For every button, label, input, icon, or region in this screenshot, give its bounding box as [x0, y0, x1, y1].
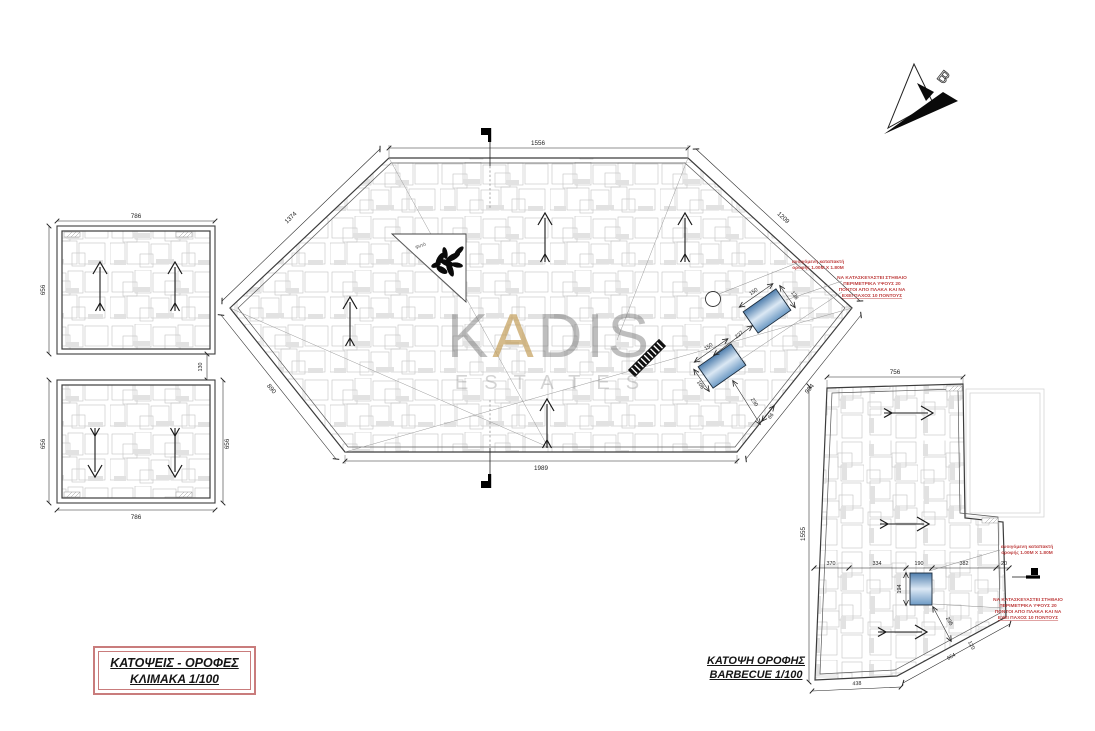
svg-text:ΠΟΝΤΟΙ ΑΠΟ ΠΛΑΚΑ ΚΑΙ ΝΑ: ΠΟΝΤΟΙ ΑΠΟ ΠΛΑΚΑ ΚΑΙ ΝΑ [839, 287, 906, 293]
dim-label: 756 [890, 369, 901, 376]
dim-label: 786 [131, 213, 142, 220]
svg-text:ανοιγόμενη καταπακτή: ανοιγόμενη καταπακτή [1001, 544, 1053, 550]
svg-text:ΝΑ ΚΑΤΑΣΚΕΥΑΣΤΕΙ ΣΤΗΘΑΙΟ: ΝΑ ΚΑΤΑΣΚΕΥΑΣΤΕΙ ΣΤΗΘΑΙΟ [837, 275, 907, 281]
dim-label: 786 [131, 514, 142, 521]
drawing-canvas: 786 656 130 656 656 786 φυτό [0, 0, 1095, 731]
dim-label: 1556 [531, 140, 546, 147]
dim-label: 656 [40, 438, 47, 449]
title-block-inner: ΚΑΤΟΨΕΙΣ - ΟΡΟΦΕΣ ΚΛΙΜΑΚΑ 1/100 [98, 651, 251, 690]
north-letter: B [934, 68, 953, 88]
dim-label: 20 [1001, 561, 1007, 567]
dim-label: 370 [827, 561, 836, 567]
dim-label: 1555 [800, 527, 807, 542]
dim-label: 120 [966, 640, 976, 651]
svg-text:οροφής 1.00M X 1.80M: οροφής 1.00M X 1.80M [792, 265, 844, 271]
dim-label: 194 [897, 585, 903, 594]
parapet-annotation: ΝΑ ΚΑΤΑΣΚΕΥΑΣΤΕΙ ΣΤΗΘΑΙΟ ΠΕΡΙΜΕΤΡΙΚΑ ΥΨΟ… [837, 275, 907, 299]
dim-label: 656 [224, 438, 231, 449]
bbq-plan-label: ΚΑΤΟΨΗ ΟΡΟΦΗΣ BARBECUE 1/100 [688, 654, 824, 682]
left-gap-dimension: 130 [198, 354, 207, 380]
dim-label: 1209 [776, 211, 791, 226]
dim-label: 130 [198, 363, 204, 372]
svg-text:ΠΕΡΙΜΕΤΡΙΚΑ ΥΨΟΥΣ 20: ΠΕΡΙΜΕΤΡΙΚΑ ΥΨΟΥΣ 20 [999, 603, 1057, 609]
dim-label: 190 [915, 561, 924, 567]
dim-label: 890 [265, 383, 277, 396]
dim-label: 382 [960, 561, 969, 567]
bbq-plan-scale: BARBECUE 1/100 [688, 668, 824, 682]
svg-text:ΝΑ ΚΑΤΑΣΚΕΥΑΣΤΕΙ ΣΤΗΘΑΙΟ: ΝΑ ΚΑΤΑΣΚΕΥΑΣΤΕΙ ΣΤΗΘΑΙΟ [993, 597, 1063, 603]
roof-vent [706, 292, 721, 307]
section-marker-right [1012, 568, 1040, 579]
svg-text:ΕΧΕΙ ΠΑΧΟΣ 10 ΠΟΝΤΟΥΣ: ΕΧΕΙ ΠΑΧΟΣ 10 ΠΟΝΤΟΥΣ [842, 293, 902, 299]
sheet-title: ΚΑΤΟΨΕΙΣ - ΟΡΟΦΕΣ [110, 655, 238, 671]
title-block: ΚΑΤΟΨΕΙΣ - ΟΡΟΦΕΣ ΚΛΙΜΑΚΑ 1/100 [93, 646, 256, 695]
dim-label: 438 [852, 681, 861, 687]
svg-text:ανοιγόμενη καταπακτή: ανοιγόμενη καταπακτή [792, 259, 844, 265]
svg-text:ΠΟΝΤΟΙ ΑΠΟ ΠΛΑΚΑ ΚΑΙ ΝΑ: ΠΟΝΤΟΙ ΑΠΟ ΠΛΑΚΑ ΚΑΙ ΝΑ [995, 609, 1062, 615]
dim-label: 656 [40, 284, 47, 295]
bbq-roof-plan: 194 756 1555 370 334 190 382 20 236 664 … [800, 369, 1063, 691]
dim-label: 664 [946, 652, 957, 662]
architectural-sheet: 786 656 130 656 656 786 φυτό [0, 0, 1095, 731]
svg-text:ΠΕΡΙΜΕΤΡΙΚΑ ΥΨΟΥΣ 20: ΠΕΡΙΜΕΤΡΙΚΑ ΥΨΟΥΣ 20 [843, 281, 901, 287]
left-bottom-roof-plan: 656 656 786 [40, 380, 231, 521]
svg-text:ΕΧΕΙ ΠΑΧΟΣ 10 ΠΟΝΤΟΥΣ: ΕΧΕΙ ΠΑΧΟΣ 10 ΠΟΝΤΟΥΣ [998, 615, 1058, 621]
left-top-roof-plan: 786 656 [40, 213, 215, 354]
sheet-scale: ΚΛΙΜΑΚΑ 1/100 [130, 671, 219, 687]
dim-label: 1989 [534, 465, 549, 472]
skylight-hatch [910, 573, 932, 605]
dim-label: 1374 [283, 210, 298, 225]
svg-text:οροφής 1.00M X 1.80M: οροφής 1.00M X 1.80M [1001, 550, 1053, 556]
dim-label: 334 [873, 561, 882, 567]
bbq-plan-title: ΚΑΤΟΨΗ ΟΡΟΦΗΣ [688, 654, 824, 668]
north-arrow-icon: B [884, 64, 958, 134]
main-roof-plan: φυτό [221, 128, 907, 488]
hatch-annotation: ανοιγόμενη καταπακτή οροφής 1.00M X 1.80… [1001, 544, 1053, 556]
